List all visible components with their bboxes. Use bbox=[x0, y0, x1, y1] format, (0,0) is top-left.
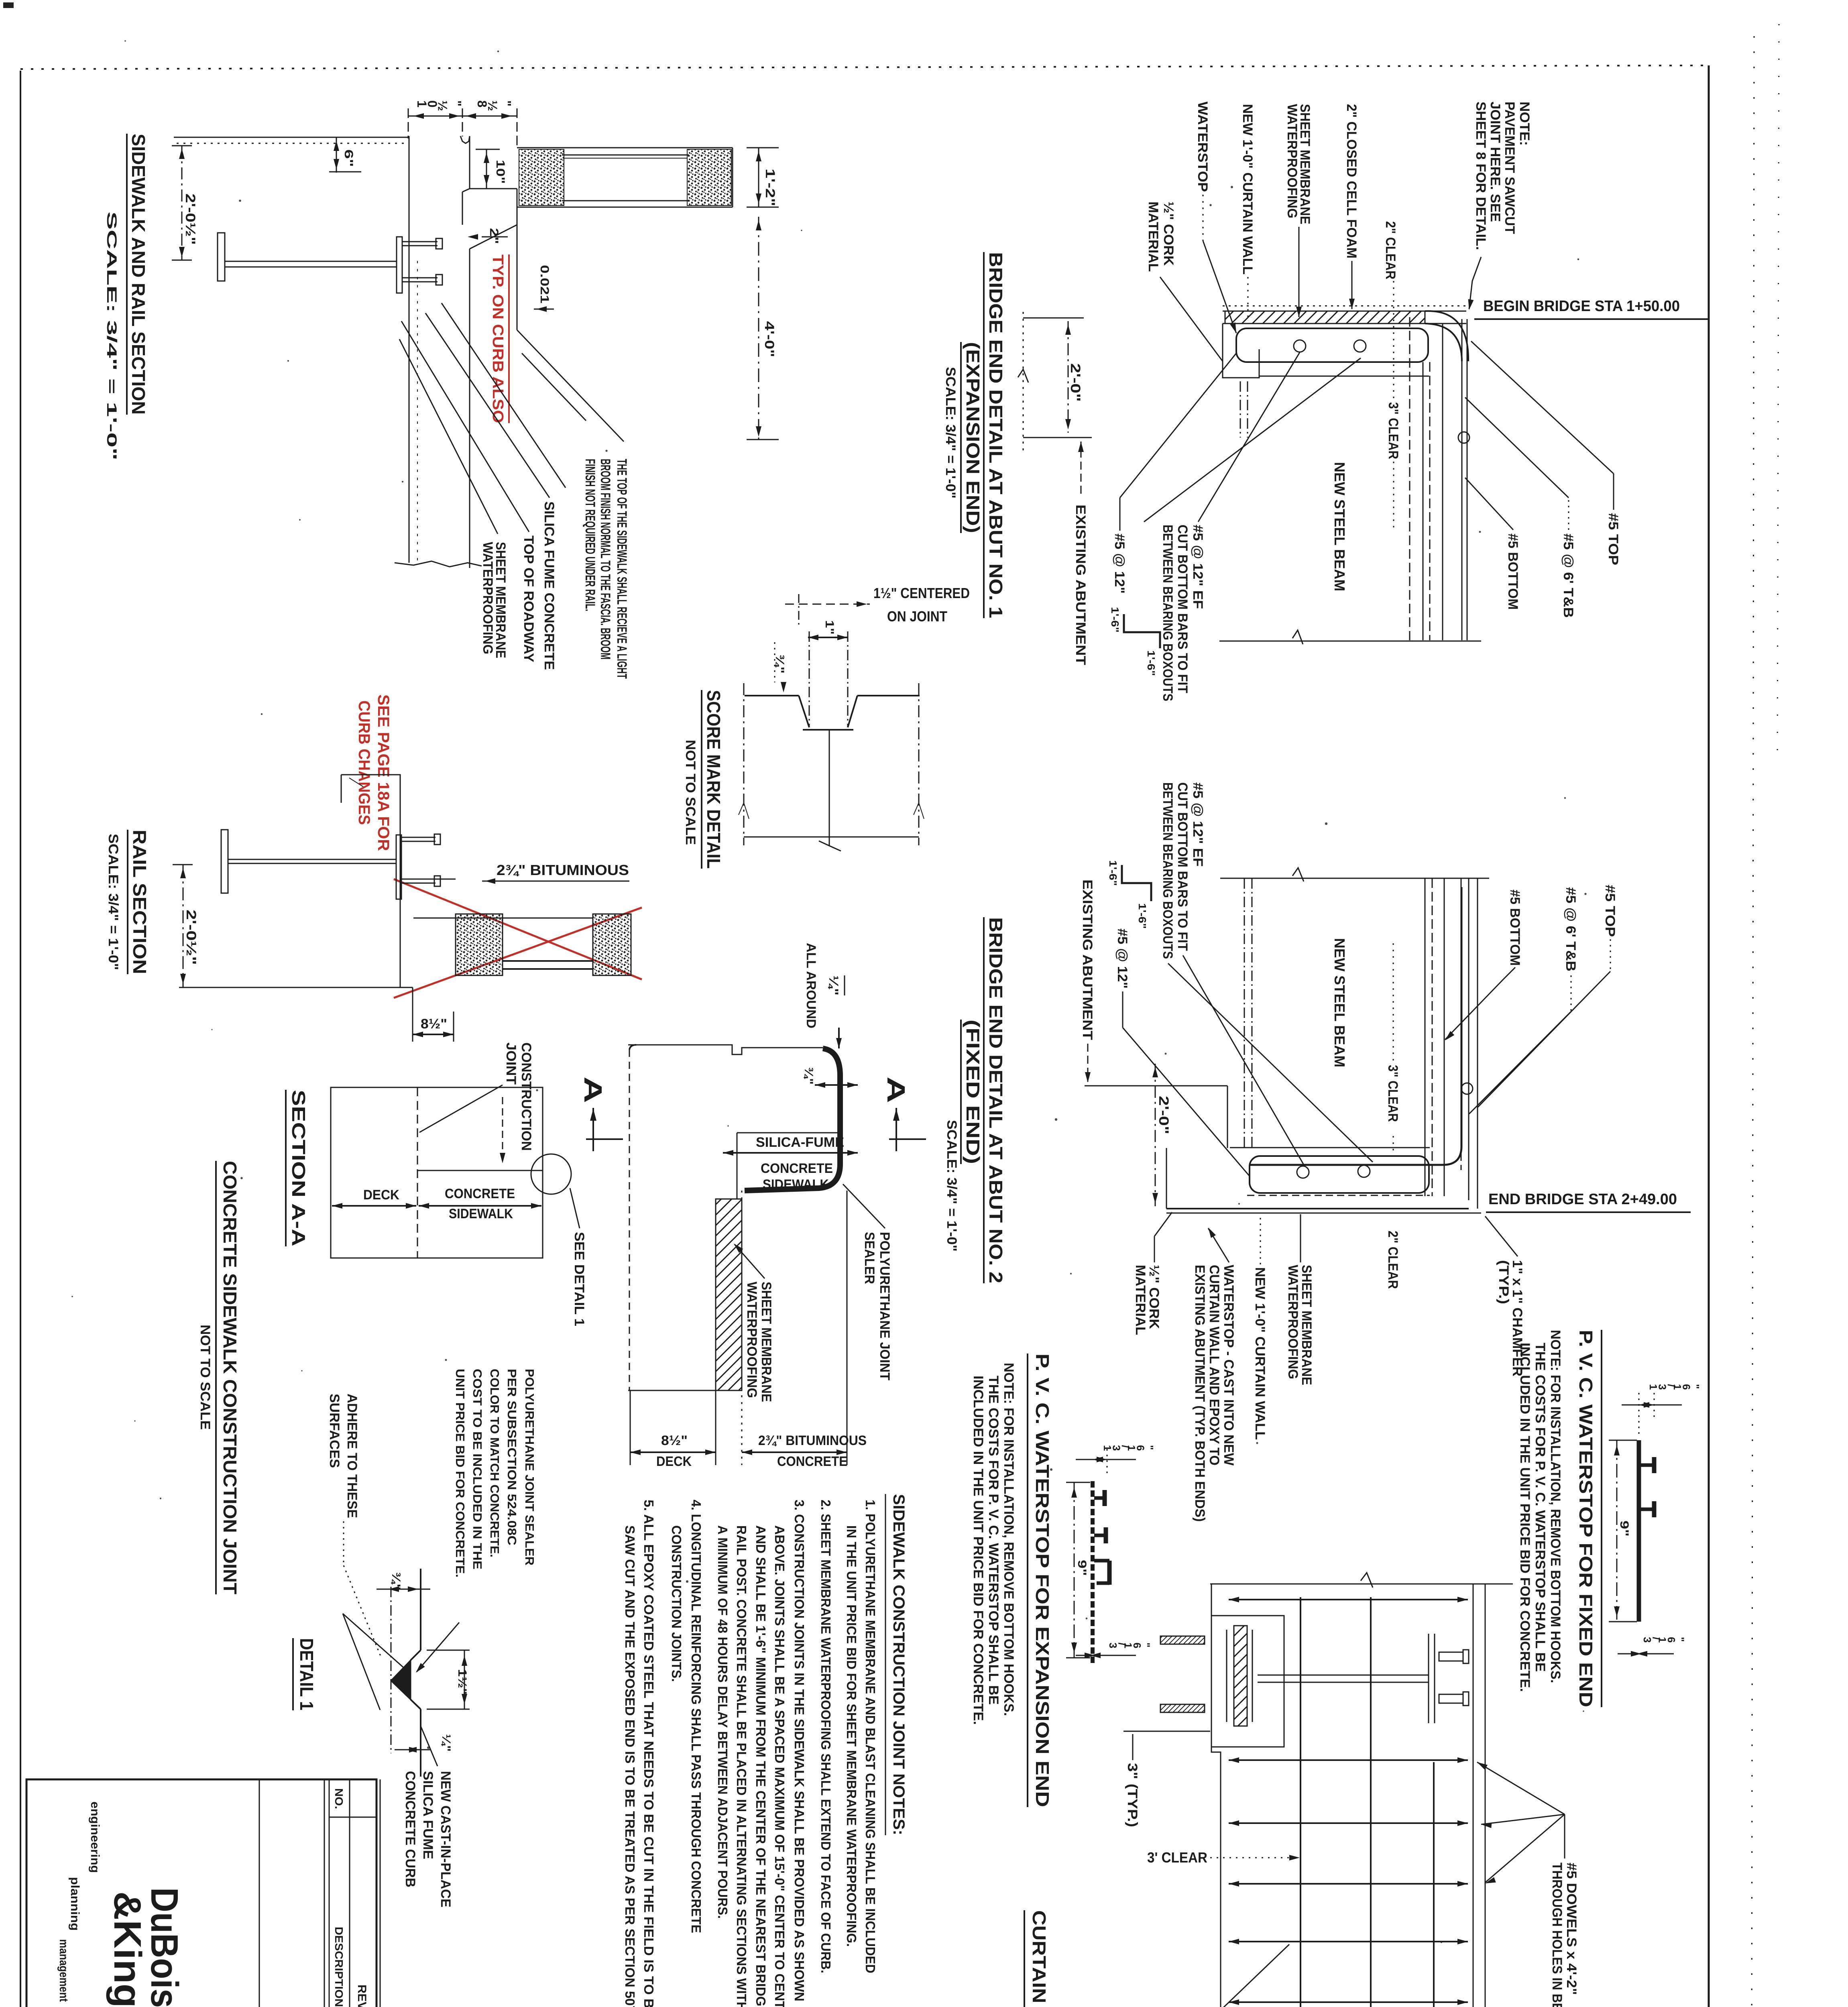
svg-text:ON JOINT: ON JOINT bbox=[887, 608, 947, 625]
svg-text:ADHERE TO THESE: ADHERE TO THESE bbox=[344, 1394, 360, 1518]
svg-text:¼": ¼" bbox=[440, 1734, 453, 1752]
svg-text:SCALE: 3/4" = 1'-0": SCALE: 3/4" = 1'-0" bbox=[104, 212, 119, 460]
svg-text:REVISIONS: REVISIONS bbox=[355, 1985, 368, 2007]
svg-text:JOINT: JOINT bbox=[503, 1042, 519, 1085]
svg-text:POLYURETHANE JOINT SEALER: POLYURETHANE JOINT SEALER bbox=[523, 1369, 537, 1565]
svg-text:ALL AROUND: ALL AROUND bbox=[804, 943, 818, 1028]
svg-text:10": 10" bbox=[494, 160, 507, 184]
svg-text:SAW CUT AND THE EXPOSED END IS: SAW CUT AND THE EXPOSED END IS TO BE TRE… bbox=[623, 1525, 637, 2007]
svg-text:SCALE: 3/4" = 1'-0": SCALE: 3/4" = 1'-0" bbox=[106, 834, 121, 970]
svg-text:DuBois: DuBois bbox=[143, 1887, 186, 2007]
svg-text:THROUGH HOLES IN BEAM: THROUGH HOLES IN BEAM bbox=[1549, 1862, 1565, 2007]
svg-text:2'-0": 2'-0" bbox=[1068, 363, 1083, 402]
svg-text:RAIL POST. CONCRETE SHALL BE P: RAIL POST. CONCRETE SHALL BE PLACED IN A… bbox=[734, 1525, 749, 2007]
svg-text:TYP. ON CURB ALSO: TYP. ON CURB ALSO bbox=[489, 254, 506, 423]
svg-text:3" CLEAR: 3" CLEAR bbox=[1386, 402, 1401, 459]
svg-text:IN THE UNIT PRICE BID FOR SHEE: IN THE UNIT PRICE BID FOR SHEET MEMBRANE… bbox=[844, 1525, 859, 1947]
svg-text:MATERIAL: MATERIAL bbox=[1146, 202, 1161, 272]
svg-text:CONCRETE: CONCRETE bbox=[777, 1454, 847, 1469]
svg-text:SEALER: SEALER bbox=[862, 1232, 877, 1284]
svg-text:SCALE: 3/4" = 1'-0": SCALE: 3/4" = 1'-0" bbox=[943, 367, 958, 499]
svg-text:COLOR TO MATCH CONCRETE.: COLOR TO MATCH CONCRETE. bbox=[488, 1369, 502, 1557]
svg-text:DECK: DECK bbox=[363, 1187, 399, 1203]
svg-text:THE COSTS FOR P. V. C. WATERST: THE COSTS FOR P. V. C. WATERSTOP SHALL B… bbox=[1533, 1343, 1548, 1672]
svg-text:engineering: engineering bbox=[88, 1801, 102, 1873]
svg-text:(FIXED END): (FIXED END) bbox=[963, 1020, 983, 1164]
svg-text:&King: &King bbox=[106, 1891, 149, 2007]
svg-text:#5 @ 6' T&B: #5 @ 6' T&B bbox=[1561, 533, 1576, 618]
svg-text:13/16": 13/16" bbox=[1101, 1445, 1156, 1454]
svg-text:SILICA FUME: SILICA FUME bbox=[420, 1771, 436, 1859]
svg-text:(TYP.): (TYP.) bbox=[1496, 1260, 1511, 1304]
svg-text:DECK: DECK bbox=[656, 1454, 692, 1469]
svg-text:THE COSTS FOR P. V. C. WATERST: THE COSTS FOR P. V. C. WATERSTOP SHALL B… bbox=[986, 1376, 1001, 1705]
svg-text:3" CLEAR: 3" CLEAR bbox=[1385, 1065, 1400, 1122]
svg-text:EXISTING ABUTMENT: EXISTING ABUTMENT bbox=[1073, 505, 1088, 665]
svg-text:4. LONGITUDINAL REINFORCING S: 4. LONGITUDINAL REINFORCING SHALL PASS T… bbox=[689, 1500, 704, 1933]
svg-text:management: management bbox=[57, 1939, 70, 2002]
svg-text:SECTION A-A: SECTION A-A bbox=[288, 1090, 309, 1246]
svg-text:¼": ¼" bbox=[826, 975, 841, 995]
svg-text:1'-6": 1'-6" bbox=[1136, 903, 1148, 929]
svg-text:CONSTRUCTION: CONSTRUCTION bbox=[519, 1042, 534, 1151]
svg-text:3" (TYP.): 3" (TYP.) bbox=[1125, 1763, 1140, 1827]
svg-text:NOT TO SCALE: NOT TO SCALE bbox=[197, 1325, 213, 1430]
svg-text:NO.: NO. bbox=[333, 1788, 345, 1809]
svg-text:JOINT HERE. SEE: JOINT HERE. SEE bbox=[1488, 102, 1503, 222]
svg-text:SIDEWALK CONSTRUCTION JOINT: SIDEWALK CONSTRUCTION JOINT NOTES: bbox=[890, 1494, 908, 1835]
svg-text:NOTE: FOR INSTALLATION, REMOVE: NOTE: FOR INSTALLATION, REMOVE BOTTOM HO… bbox=[1548, 1330, 1563, 1683]
svg-text:UNIT PRICE BID FOR CONCRETE.: UNIT PRICE BID FOR CONCRETE. bbox=[453, 1369, 467, 1578]
svg-text:CONCRETE: CONCRETE bbox=[761, 1161, 833, 1176]
svg-text:2'-0": 2'-0" bbox=[1156, 1096, 1171, 1134]
svg-text:1'-6": 1'-6" bbox=[1109, 607, 1121, 633]
svg-text:NEW 1'-0" CURTAIN WALL: NEW 1'-0" CURTAIN WALL bbox=[1252, 1267, 1268, 1440]
svg-text:1'-6": 1'-6" bbox=[1145, 650, 1157, 676]
svg-text:planning: planning bbox=[68, 1877, 81, 1931]
svg-text:SURFACES: SURFACES bbox=[327, 1394, 342, 1468]
svg-text:PER SUBSECTION 524.08C: PER SUBSECTION 524.08C bbox=[505, 1369, 519, 1545]
svg-text:#5 @ 12": #5 @ 12" bbox=[1112, 533, 1127, 594]
svg-text:CONCRETE CURB: CONCRETE CURB bbox=[403, 1771, 418, 1887]
svg-text:A MINIMUM OF 48 HOURS DELAY BE: A MINIMUM OF 48 HOURS DELAY BETWEEN ADJA… bbox=[715, 1525, 730, 1919]
svg-text:#5 @ 12" EF: #5 @ 12" EF bbox=[1190, 782, 1205, 867]
svg-text:CONSTRUCTION JOINTS.: CONSTRUCTION JOINTS. bbox=[669, 1525, 684, 1682]
svg-text:6": 6" bbox=[342, 149, 355, 167]
svg-text:SEE DETAIL 1: SEE DETAIL 1 bbox=[572, 1232, 587, 1326]
svg-text:SIDEWALK: SIDEWALK bbox=[449, 1206, 513, 1221]
svg-text:2'-0½": 2'-0½" bbox=[183, 910, 199, 965]
svg-text:WATERSTOP - CAST INTO NEW: WATERSTOP - CAST INTO NEW bbox=[1221, 1265, 1236, 1466]
svg-text:NEW 1'-0" CURTAIN WALL: NEW 1'-0" CURTAIN WALL bbox=[1240, 104, 1255, 275]
svg-text:SHEET MEMBRANE: SHEET MEMBRANE bbox=[759, 1282, 774, 1402]
svg-text:CONCRETE SIDEWALK CONSTRUCTI: CONCRETE SIDEWALK CONSTRUCTION JOINT bbox=[220, 1161, 240, 1594]
svg-text:2¾" BITUMINOUS: 2¾" BITUMINOUS bbox=[758, 1433, 867, 1448]
svg-text:BEGIN BRIDGE STA 1+50.00: BEGIN BRIDGE STA 1+50.00 bbox=[1483, 298, 1680, 315]
svg-text:1½": 1½" bbox=[456, 1669, 469, 1695]
svg-text:COST TO BE INCLUDED IN THE: COST TO BE INCLUDED IN THE bbox=[470, 1369, 484, 1569]
svg-text:TOP OF ROADWAY: TOP OF ROADWAY bbox=[521, 535, 536, 662]
svg-text:INCLUDED IN THE UNIT PRICE BID: INCLUDED IN THE UNIT PRICE BID FOR CONCR… bbox=[1517, 1343, 1533, 1692]
svg-text:BETWEEN BEARING BOXOUTS: BETWEEN BEARING BOXOUTS bbox=[1160, 525, 1175, 701]
svg-text:WATERPROOFING: WATERPROOFING bbox=[744, 1282, 759, 1398]
svg-text:SHEET 8 FOR DETAIL.: SHEET 8 FOR DETAIL. bbox=[1473, 102, 1488, 250]
svg-text:1'-6": 1'-6" bbox=[1107, 860, 1119, 886]
svg-text:SILICA FUME CONCRETE: SILICA FUME CONCRETE bbox=[541, 501, 557, 670]
svg-text:CONCRETE: CONCRETE bbox=[445, 1186, 515, 1201]
svg-text:½" CORK: ½" CORK bbox=[1146, 1265, 1162, 1329]
svg-text:½" CORK: ½" CORK bbox=[1161, 202, 1176, 266]
svg-text:#5 TOP: #5 TOP bbox=[1606, 513, 1621, 565]
svg-text:WATERPROOFING: WATERPROOFING bbox=[1285, 1265, 1301, 1379]
svg-text:4'-0": 4'-0" bbox=[762, 321, 777, 357]
svg-text:FINISH NOT REQUIRED UNDER RAIL: FINISH NOT REQUIRED UNDER RAIL. bbox=[582, 459, 598, 611]
svg-text:#5 DOWELS x 4'-2": #5 DOWELS x 4'-2" bbox=[1564, 1862, 1579, 1995]
svg-text:BRIDGE END DETAIL AT ABUT: BRIDGE END DETAIL AT ABUT NO. 2 bbox=[985, 917, 1006, 1283]
svg-text:2" CLOSED CELL FOAM: 2" CLOSED CELL FOAM bbox=[1344, 104, 1359, 259]
svg-text:CURTAIN WALL ELEVATION: CURTAIN WALL ELEVATION bbox=[1029, 1910, 1050, 2007]
svg-text:#5 @ 12" EF: #5 @ 12" EF bbox=[1190, 525, 1205, 609]
svg-text:P. V. C. WATERSTOP FOR EXPA: P. V. C. WATERSTOP FOR EXPANSION END bbox=[1032, 1354, 1053, 1807]
svg-text:NOT TO SCALE: NOT TO SCALE bbox=[683, 740, 698, 845]
svg-text:NEW CAST-IN-PLACE: NEW CAST-IN-PLACE bbox=[438, 1771, 453, 1907]
svg-text:EXISTING ABUTMENT (TYP. BOTH E: EXISTING ABUTMENT (TYP. BOTH ENDS) bbox=[1192, 1265, 1207, 1522]
svg-text:#5 TOP: #5 TOP bbox=[1602, 885, 1618, 937]
svg-text:MATERIAL: MATERIAL bbox=[1133, 1265, 1148, 1335]
svg-text:3. CONSTRUCTION JOINTS IN THE: 3. CONSTRUCTION JOINTS IN THE SIDEWALK S… bbox=[792, 1500, 807, 2001]
svg-text:NOTE:: NOTE: bbox=[1517, 102, 1532, 146]
svg-text:EXISTING ABUTMENT: EXISTING ABUTMENT bbox=[1080, 879, 1095, 1040]
svg-text:THE TOP OF THE SIDEWALK SHALL: THE TOP OF THE SIDEWALK SHALL RECIEVE A … bbox=[614, 459, 629, 679]
svg-text:2¾" BITUMINOUS: 2¾" BITUMINOUS bbox=[497, 862, 629, 878]
svg-text:1": 1" bbox=[823, 620, 836, 635]
svg-text:¾": ¾" bbox=[802, 1067, 815, 1085]
svg-text:1. POLYURETHANE MEMBRANE AND: 1. POLYURETHANE MEMBRANE AND BLAST CLEAN… bbox=[863, 1500, 878, 1973]
svg-text:5. ALL EPOXY COATED STEEL THA: 5. ALL EPOXY COATED STEEL THAT NEEDS TO … bbox=[641, 1500, 656, 2007]
svg-text:PAVEMENT SAWCUT: PAVEMENT SAWCUT bbox=[1502, 102, 1517, 234]
svg-text:RAIL SECTION: RAIL SECTION bbox=[129, 830, 150, 974]
svg-text:BRIDGE END DETAIL AT ABUT: BRIDGE END DETAIL AT ABUT NO. 1 bbox=[985, 252, 1006, 618]
svg-text:ABOVE. JOINTS SHALL BE A SPACE: ABOVE. JOINTS SHALL BE A SPACED MAXIMUM … bbox=[772, 1525, 787, 2007]
svg-text:WATERPROOFING: WATERPROOFING bbox=[480, 542, 495, 654]
svg-text:NEW STEEL BEAM: NEW STEEL BEAM bbox=[1331, 462, 1348, 591]
svg-text:SCORE MARK DETAIL: SCORE MARK DETAIL bbox=[703, 690, 724, 869]
svg-text:SHEET MEMBRANE: SHEET MEMBRANE bbox=[1299, 1265, 1314, 1385]
svg-text:NEW STEEL BEAM: NEW STEEL BEAM bbox=[1331, 938, 1348, 1067]
svg-text:2'-0½": 2'-0½" bbox=[183, 193, 198, 245]
svg-text:DETAIL 1: DETAIL 1 bbox=[296, 1638, 317, 1710]
svg-text:9": 9" bbox=[1618, 1521, 1631, 1537]
svg-text:3/16": 3/16" bbox=[1107, 1643, 1152, 1651]
svg-text:BROOM FINISH NORMAL TO THE FAS: BROOM FINISH NORMAL TO THE FASCIA. BROOM bbox=[598, 459, 613, 660]
svg-text:POLYURETHANE JOINT: POLYURETHANE JOINT bbox=[877, 1232, 892, 1380]
svg-text:3' CLEAR: 3' CLEAR bbox=[1147, 1849, 1207, 1866]
svg-text:P. V. C. WATERSTOP FOR FIXE: P. V. C. WATERSTOP FOR FIXED END bbox=[1575, 1330, 1596, 1707]
svg-text:CUT BOTTOM BARS TO FIT: CUT BOTTOM BARS TO FIT bbox=[1175, 525, 1190, 693]
svg-text:(EXPANSION END): (EXPANSION END) bbox=[963, 342, 983, 533]
svg-text:#5 @ 12": #5 @ 12" bbox=[1115, 928, 1130, 989]
svg-text:0.021: 0.021 bbox=[538, 265, 551, 303]
svg-text:BETWEEN BEARING BOXOUTS: BETWEEN BEARING BOXOUTS bbox=[1160, 782, 1175, 959]
svg-text:1'-2": 1'-2" bbox=[763, 169, 777, 206]
svg-text:CURB CHANGES: CURB CHANGES bbox=[355, 700, 373, 825]
svg-text:WATERPROOFING: WATERPROOFING bbox=[1284, 104, 1300, 218]
svg-text:DESCRIPTION: DESCRIPTION bbox=[333, 1927, 345, 2007]
svg-text:#5 BOTTOM: #5 BOTTOM bbox=[1507, 890, 1522, 966]
svg-text:SILICA-FUME: SILICA-FUME bbox=[756, 1135, 844, 1150]
svg-text:AND SHALL BE 1'-6" MINIMUM FRO: AND SHALL BE 1'-6" MINIMUM FROM THE CENT… bbox=[753, 1525, 768, 2007]
svg-text:2. SHEET MEMBRANE WATERPROOFI: 2. SHEET MEMBRANE WATERPROOFING SHALL EX… bbox=[818, 1500, 833, 1973]
svg-text:3/16": 3/16" bbox=[1641, 1637, 1687, 1646]
svg-text:2" CLEAR: 2" CLEAR bbox=[1383, 221, 1398, 279]
svg-text:A: A bbox=[579, 1077, 607, 1103]
svg-text:#5 @ 6' T&B: #5 @ 6' T&B bbox=[1563, 887, 1578, 971]
svg-text:13/16": 13/16" bbox=[1647, 1384, 1701, 1393]
svg-text:8½": 8½" bbox=[661, 1433, 688, 1448]
svg-text:1½" CENTERED: 1½" CENTERED bbox=[873, 585, 970, 601]
svg-text:SCALE: 3/4" = 1'-0": SCALE: 3/4" = 1'-0" bbox=[944, 1120, 959, 1252]
svg-text:CUT BOTTOM BARS TO FIT: CUT BOTTOM BARS TO FIT bbox=[1175, 782, 1190, 951]
svg-text:WATERSTOP: WATERSTOP bbox=[1195, 102, 1210, 192]
svg-text:SIDEWALK AND RAIL SECTION: SIDEWALK AND RAIL SECTION bbox=[128, 134, 149, 415]
svg-text:SEE PAGE 18A FOR: SEE PAGE 18A FOR bbox=[374, 694, 392, 851]
svg-text:END BRIDGE STA 2+49.00: END BRIDGE STA 2+49.00 bbox=[1488, 1191, 1677, 1208]
svg-text:2" CLEAR: 2" CLEAR bbox=[1385, 1231, 1400, 1289]
svg-text:A: A bbox=[882, 1077, 910, 1103]
svg-text:#5 BOTTOM: #5 BOTTOM bbox=[1505, 533, 1520, 610]
svg-text:INCLUDED IN THE UNIT PRICE BID: INCLUDED IN THE UNIT PRICE BID FOR CONCR… bbox=[971, 1376, 986, 1725]
svg-text:NOTE: FOR INSTALLATION, REMOVE: NOTE: FOR INSTALLATION, REMOVE BOTTOM HO… bbox=[1001, 1363, 1016, 1716]
svg-text:9": 9" bbox=[1075, 1560, 1089, 1576]
svg-text:CURTAIN WALL AND EPOXY TO: CURTAIN WALL AND EPOXY TO bbox=[1207, 1265, 1222, 1466]
svg-text:8½": 8½" bbox=[421, 1016, 447, 1032]
svg-text:SIDEWALK: SIDEWALK bbox=[763, 1177, 829, 1192]
